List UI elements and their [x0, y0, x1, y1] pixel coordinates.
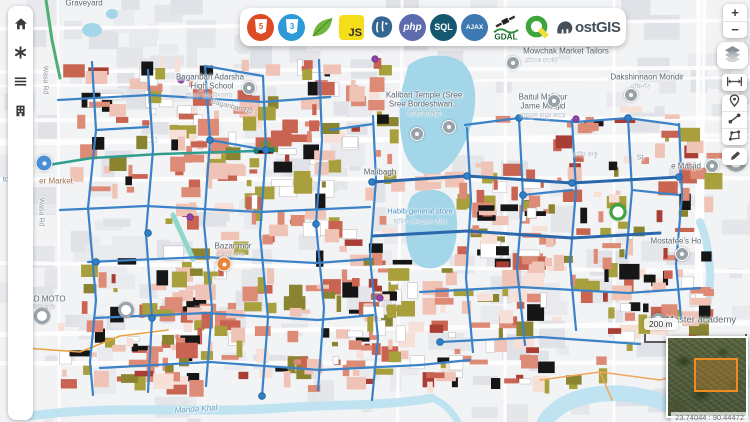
leaflet-icon[interactable]: [309, 14, 335, 40]
map-canvas[interactable]: [0, 0, 750, 422]
postgresql-icon[interactable]: [368, 14, 395, 41]
qgis-icon[interactable]: [524, 14, 551, 41]
map-extent-rectangle[interactable]: [694, 358, 738, 392]
postgis-icon[interactable]: ostGIS: [555, 18, 620, 37]
javascript-icon[interactable]: JS: [339, 15, 364, 40]
sql-icon[interactable]: SQL: [430, 14, 457, 41]
svg-text:GDAL: GDAL: [494, 32, 517, 40]
marker-pin-icon: [729, 94, 740, 112]
coordinates-readout: 23.74044 : 90.44472: [671, 412, 748, 422]
swipe-compare-button[interactable]: [722, 74, 747, 91]
html5-icon[interactable]: 5: [247, 14, 274, 41]
measure-distance-button[interactable]: [722, 111, 747, 128]
layers-button[interactable]: [717, 42, 748, 69]
left-sidebar: [8, 6, 33, 420]
zoom-out-button[interactable]: −: [723, 21, 747, 39]
sidebar-asterisk-icon[interactable]: [13, 45, 28, 60]
sidebar-home-icon[interactable]: [13, 16, 28, 31]
scale-label: 200 m: [644, 318, 678, 330]
measure-line-icon: [728, 111, 741, 129]
svg-text:5: 5: [258, 22, 263, 31]
zoom-control: + −: [723, 4, 747, 38]
swipe-arrows-icon: [726, 74, 743, 92]
css3-icon[interactable]: 3: [278, 14, 305, 41]
ajax-icon[interactable]: AJAX: [461, 14, 488, 41]
measure-area-button[interactable]: [722, 128, 747, 145]
svg-text:3: 3: [289, 22, 294, 31]
zoom-in-button[interactable]: +: [723, 4, 747, 21]
measure-area-icon: [728, 128, 741, 146]
pen-icon: [728, 148, 741, 166]
map-application: GraveyardRd Number 2Mowchak Market Tailo…: [0, 0, 750, 422]
gdal-icon[interactable]: GDAL: [492, 14, 520, 41]
overview-inset-map[interactable]: [666, 336, 748, 418]
layers-icon: [723, 45, 742, 67]
php-icon[interactable]: php: [399, 14, 426, 41]
measure-tools-group: [722, 95, 747, 145]
draw-button[interactable]: [722, 148, 747, 165]
add-marker-button[interactable]: [722, 95, 747, 111]
sidebar-building-icon[interactable]: [13, 103, 28, 118]
sidebar-list-icon[interactable]: [13, 74, 28, 89]
tech-stack-toolbar: 53JSphpSQLAJAXGDALostGIS: [240, 8, 626, 46]
